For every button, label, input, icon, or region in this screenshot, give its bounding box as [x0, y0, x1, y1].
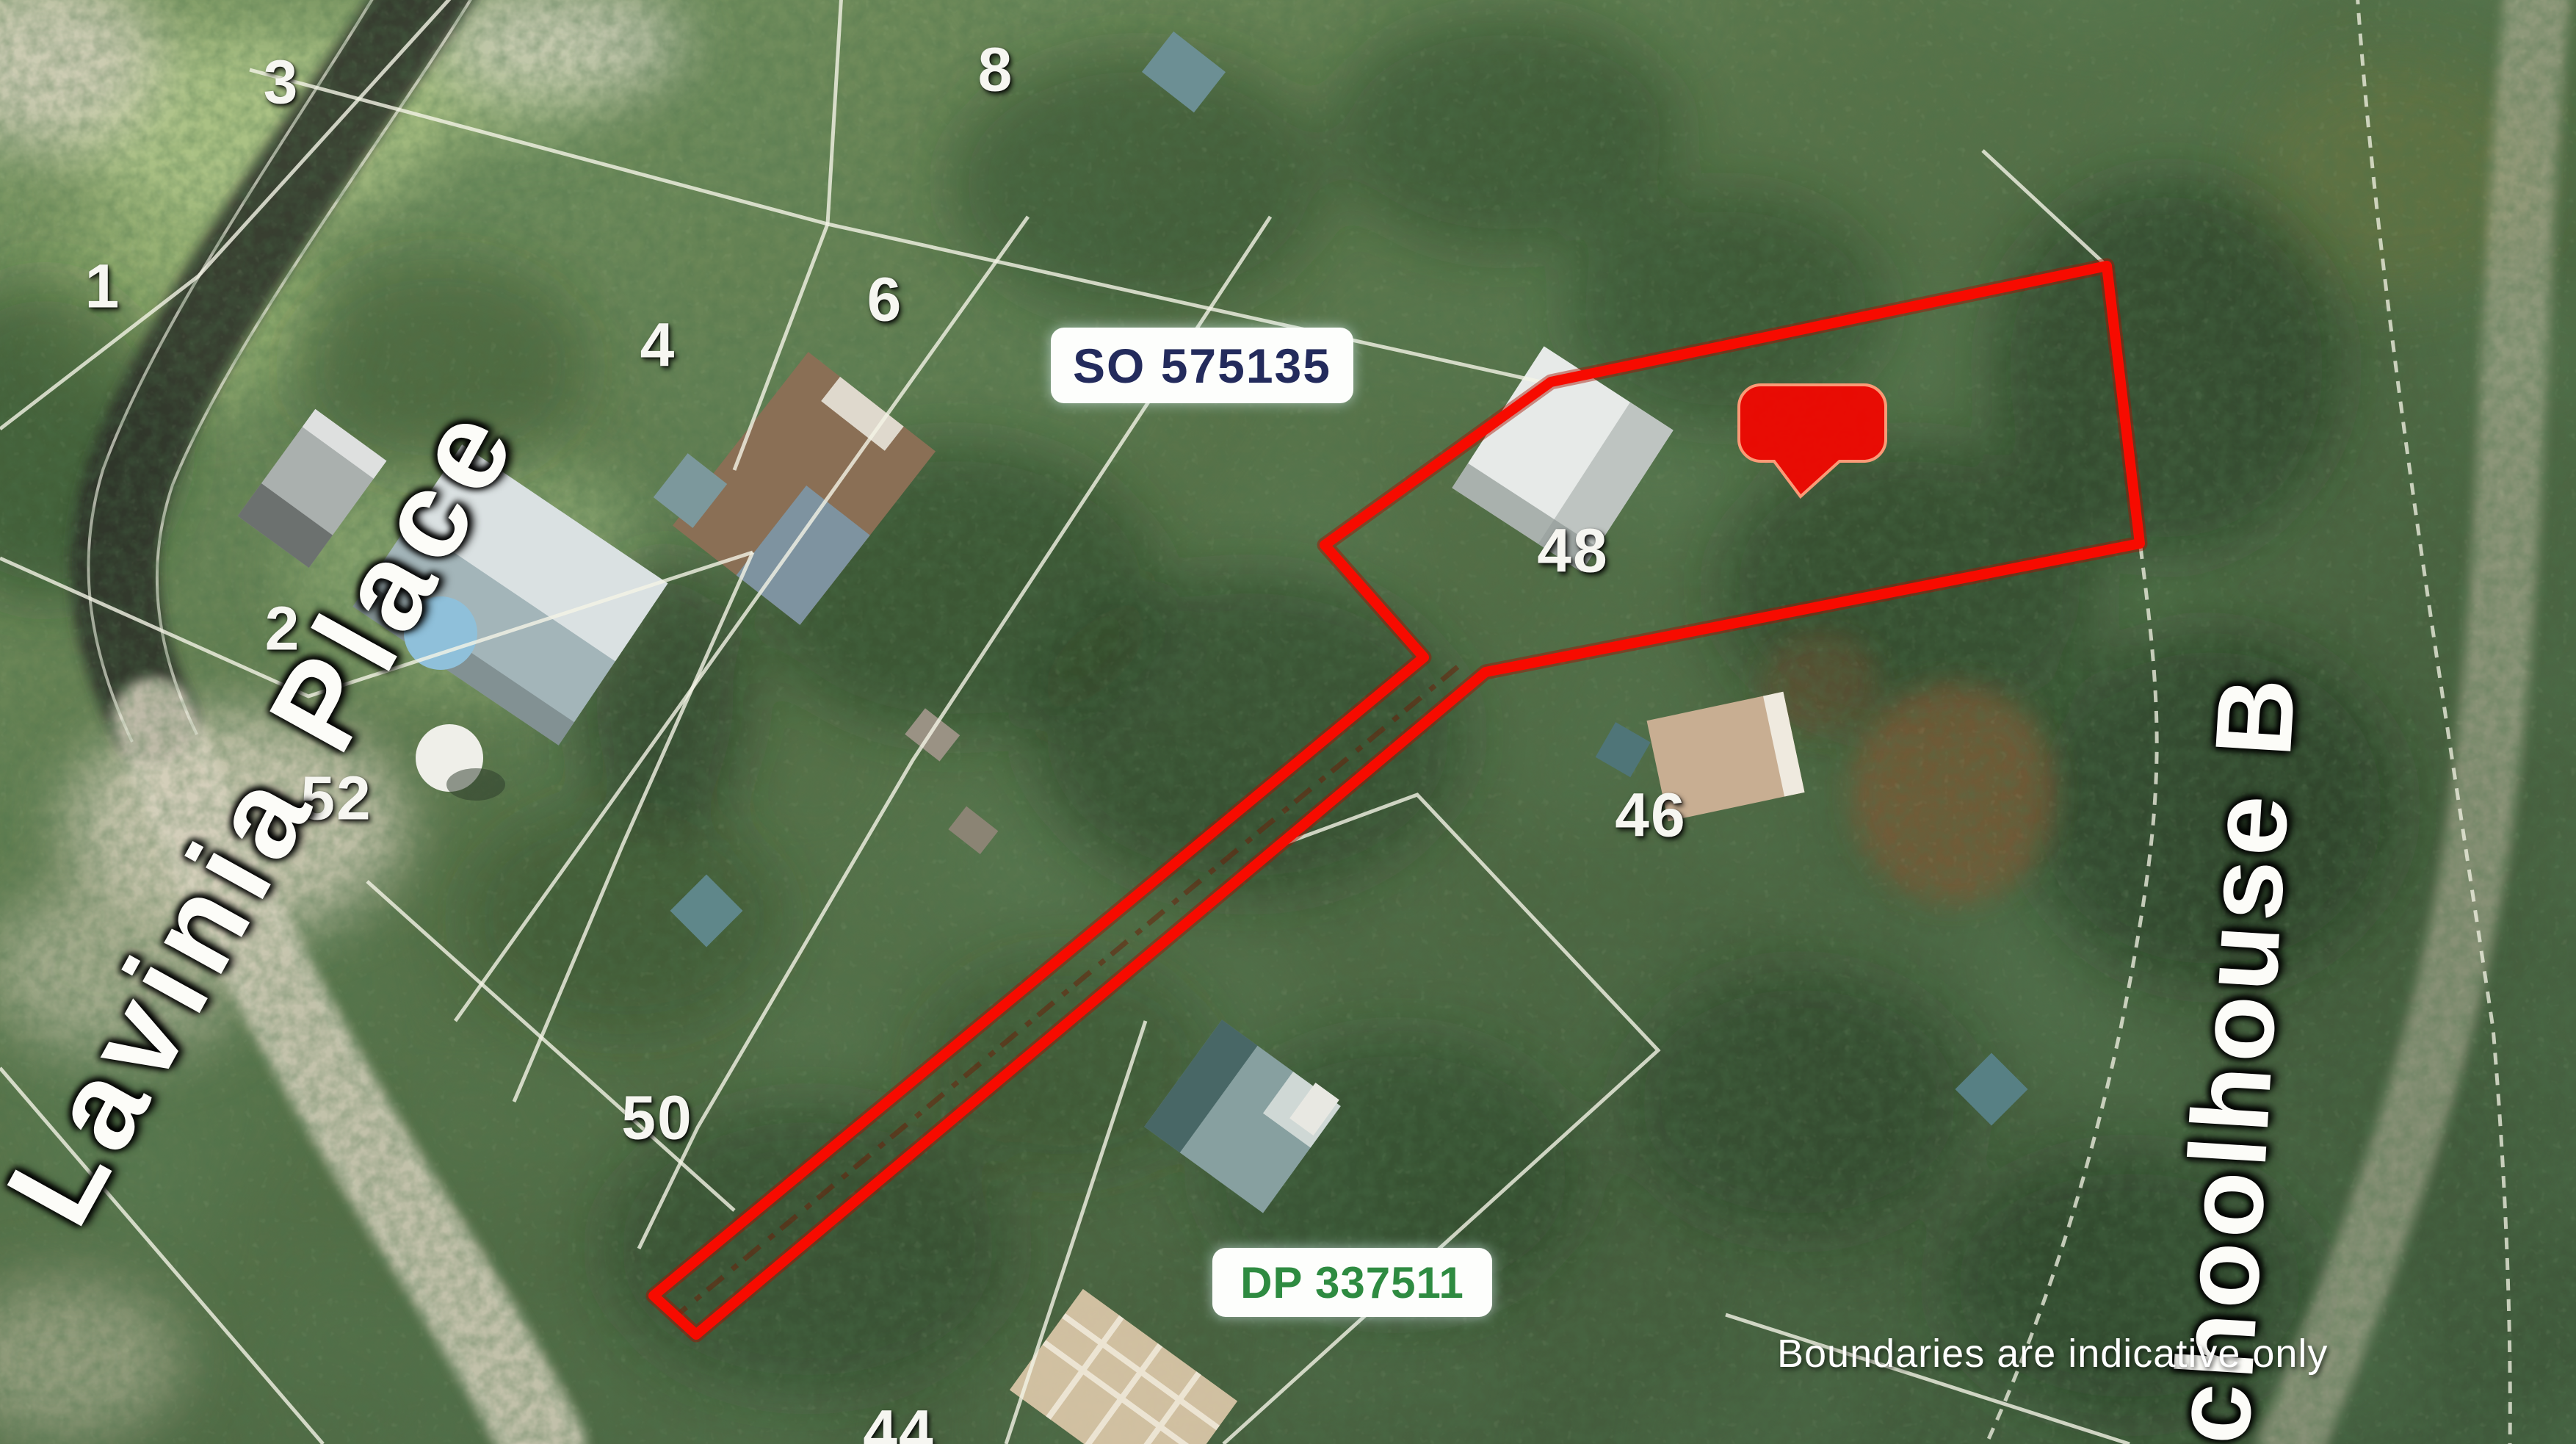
survey-label-dp: DP 337511: [1212, 1248, 1492, 1317]
lot-number-label: 3: [264, 47, 300, 118]
lot-number-label: 4: [640, 310, 676, 381]
lot-number-label: 8: [978, 35, 1014, 106]
lot-number-label: 50: [621, 1083, 692, 1154]
lot-number-label: 1: [85, 251, 121, 322]
lot-number-label: 44: [863, 1397, 934, 1444]
lot-number-label: 6: [867, 264, 903, 336]
survey-label-so: SO 575135: [1051, 328, 1353, 403]
disclaimer-text: Boundaries are indicative only: [1777, 1331, 2328, 1376]
lot-number-label: 48: [1537, 516, 1608, 587]
aerial-map: 3186425250484644 Lavinia Place Schoolhou…: [0, 0, 2576, 1444]
lot-number-label: 46: [1615, 780, 1686, 851]
